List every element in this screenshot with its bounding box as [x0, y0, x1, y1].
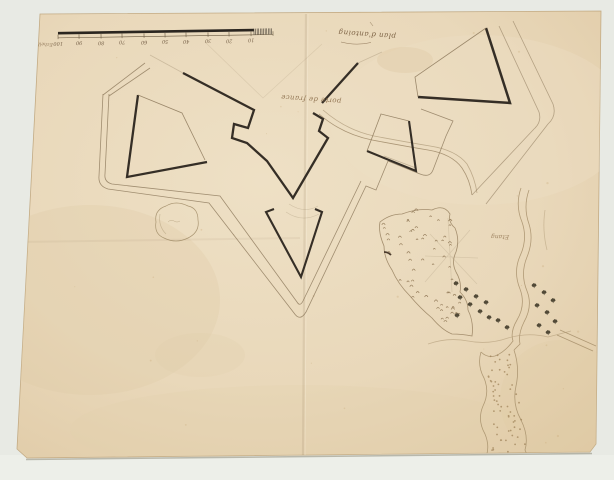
scale-tick-label: 70 [118, 39, 125, 45]
scale-tick-label: 50 [161, 38, 168, 44]
scanned-map-page: 100 90 80 70 60 50 40 30 20 10 Echelle p… [0, 0, 614, 480]
pond-etang-label: Etang [491, 233, 510, 240]
scale-tick-label: 10 [247, 37, 254, 43]
scale-tick-label: 20 [225, 37, 233, 43]
scale-tick-label: 100 [52, 40, 62, 46]
scale-tick-label: 60 [140, 39, 147, 45]
scale-tick-label: 80 [97, 39, 104, 45]
map-canvas: 100 90 80 70 60 50 40 30 20 10 Echelle p… [0, 0, 614, 480]
scale-tick-label: 90 [75, 39, 82, 45]
scale-tick-label: 40 [182, 38, 190, 44]
